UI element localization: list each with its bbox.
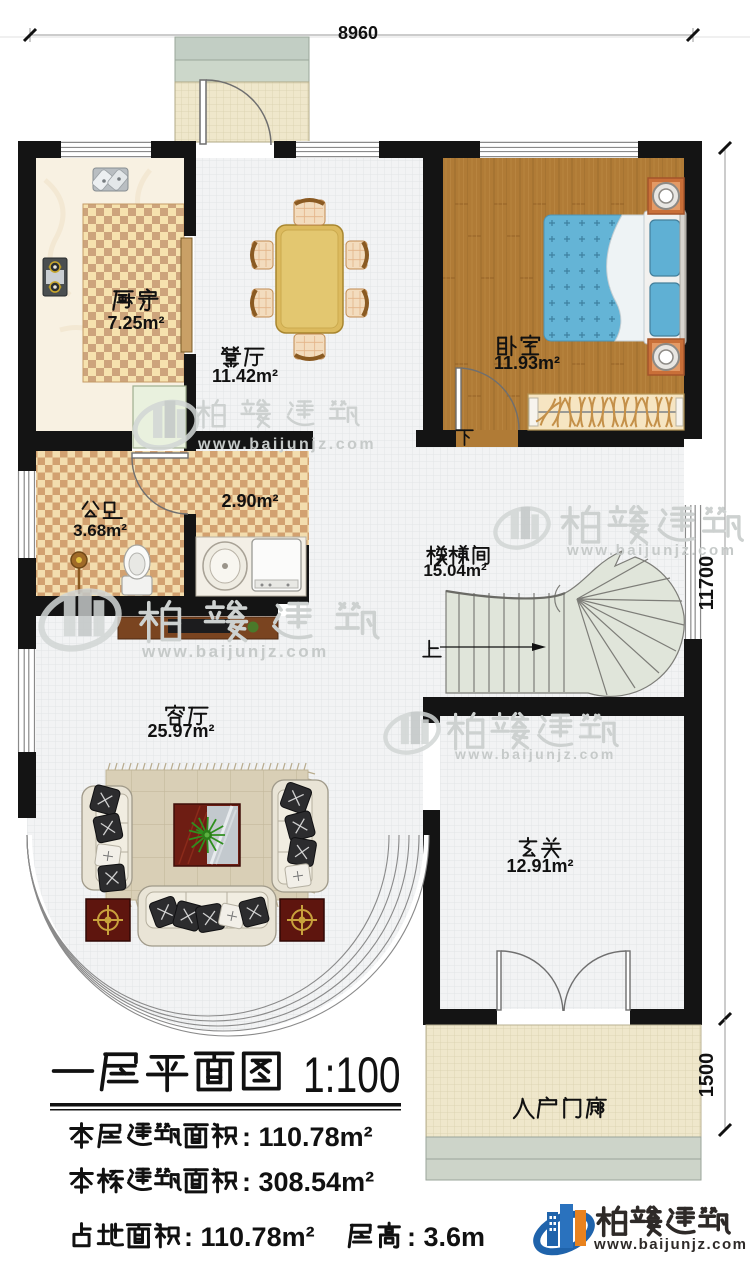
svg-text:: 110.78m²: : 110.78m² [242,1122,373,1152]
svg-text:: 308.54m²: : 308.54m² [242,1167,374,1197]
svg-text:www.baijunjz.com: www.baijunjz.com [197,436,376,453]
svg-text:1500: 1500 [696,1053,718,1098]
svg-text:11.93m²: 11.93m² [494,353,560,373]
svg-text:12.91m²: 12.91m² [506,856,573,876]
svg-text:1:100: 1:100 [303,1046,401,1103]
svg-text:www.baijunjz.com: www.baijunjz.com [454,746,616,762]
svg-text:7.25m²: 7.25m² [107,313,164,333]
svg-text:15.04m²: 15.04m² [423,561,487,580]
svg-text:: 110.78m²: : 110.78m² [184,1222,315,1252]
svg-text:25.97m²: 25.97m² [147,721,214,741]
svg-text:www.baijunjz.com: www.baijunjz.com [141,642,329,661]
svg-text:8960: 8960 [338,23,378,43]
svg-text:2.90m²: 2.90m² [221,491,278,511]
svg-text:: 3.6m: : 3.6m [407,1222,485,1252]
svg-text:www.baijunjz.com: www.baijunjz.com [566,542,736,559]
svg-text:www.baijunjz.com: www.baijunjz.com [593,1236,747,1253]
svg-text:3.68m²: 3.68m² [73,521,127,540]
svg-text:11.42m²: 11.42m² [212,366,278,386]
svg-text:11700: 11700 [696,556,718,611]
